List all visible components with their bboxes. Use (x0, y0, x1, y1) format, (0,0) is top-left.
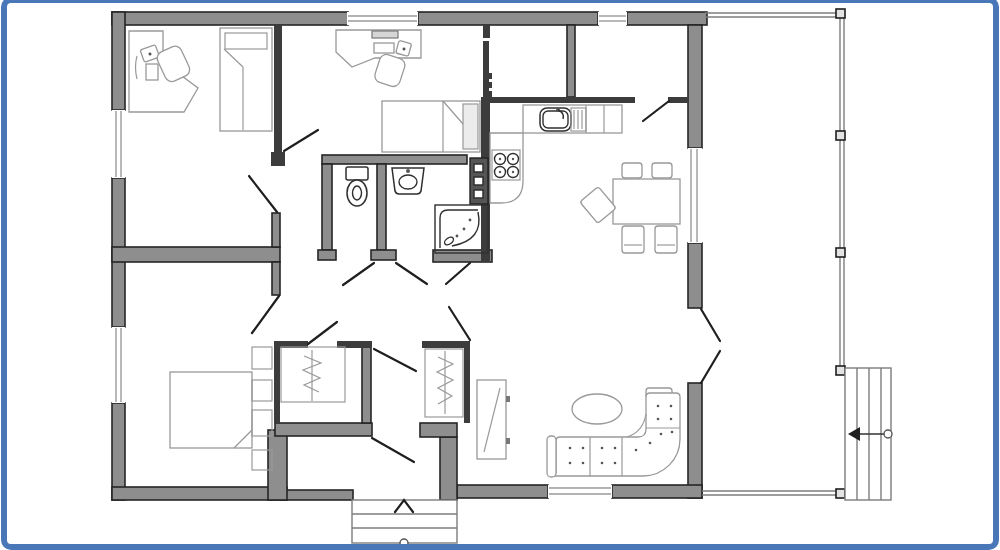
keyboard (374, 43, 394, 53)
floor-plan-svg (0, 0, 1000, 550)
counter-side (490, 133, 523, 203)
master-bedroom (170, 347, 272, 470)
door-shower-room (446, 263, 470, 284)
window-left-lower (112, 327, 125, 403)
single-bed (220, 28, 272, 131)
shower-head (443, 236, 455, 247)
door-porch-leaf-1 (701, 309, 720, 341)
door-washroom (396, 263, 427, 284)
chair (652, 163, 672, 178)
chair (622, 163, 642, 178)
single-bed (382, 101, 480, 152)
dining-table (613, 179, 680, 224)
railing-post (836, 248, 845, 257)
railing-post (836, 366, 845, 375)
chair (622, 226, 644, 253)
railing-post (836, 9, 845, 18)
sofa-armrest (547, 436, 556, 477)
keyboard (146, 64, 158, 80)
chair (655, 226, 677, 253)
arrow-origin-circle (884, 430, 892, 438)
laptop (372, 31, 398, 38)
arrow-origin-circle (400, 539, 408, 547)
door-wc (343, 263, 374, 285)
oval-coffee-table (572, 394, 622, 424)
door-master-bedroom (252, 296, 279, 333)
tall-utility-unit (470, 158, 488, 204)
door-closet-mid (374, 349, 416, 371)
door-closet-right (449, 307, 470, 340)
double-bed (170, 372, 252, 448)
mirror-cabinet (477, 380, 510, 459)
window-east (688, 148, 702, 243)
shower-cabin (435, 205, 488, 253)
counter-top (523, 105, 622, 133)
chair (580, 187, 616, 224)
washbasin (392, 168, 424, 194)
toilet (346, 167, 368, 206)
office-room (129, 28, 272, 131)
door-kitchen-dining (643, 101, 669, 121)
bathroom (346, 167, 488, 253)
wardrobe-right (425, 349, 463, 417)
sink (540, 108, 571, 131)
living-room (547, 388, 680, 477)
railing-post (836, 131, 845, 140)
headboard (463, 104, 478, 149)
window-south (548, 485, 612, 498)
side-steps (845, 368, 892, 500)
window-top-left (347, 12, 418, 25)
entrance-steps (352, 500, 457, 547)
window-top-right (598, 12, 627, 25)
door-porch-leaf-2 (701, 351, 720, 383)
door-entry (372, 438, 414, 462)
dining-area (580, 163, 680, 253)
floor-plan-image (0, 0, 1000, 550)
small-bedroom (336, 30, 480, 152)
hall-closets (281, 347, 510, 459)
railing-post (836, 489, 845, 498)
door-hall-north (249, 176, 277, 212)
wardrobe-left (281, 347, 345, 402)
window-left-upper (112, 110, 125, 178)
door-office (284, 130, 318, 151)
door-closet-left (308, 322, 337, 344)
